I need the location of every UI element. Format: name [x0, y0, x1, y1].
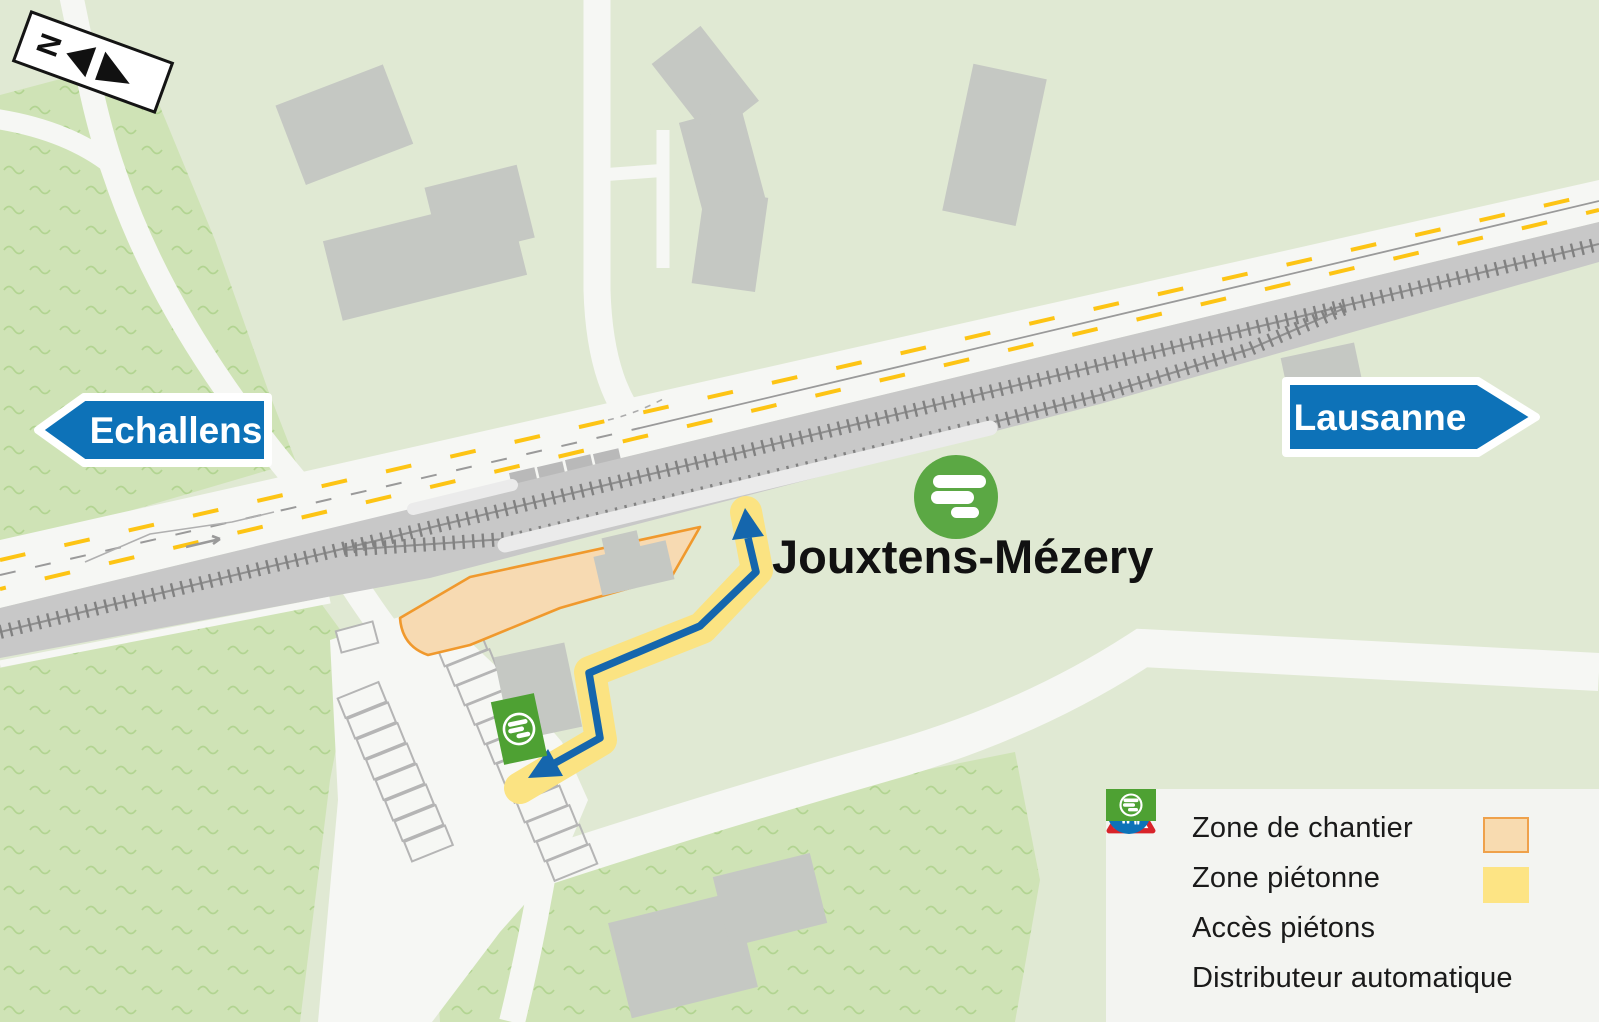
pedestrian-zone-swatch	[1483, 867, 1529, 903]
legend-label: Distributeur automatique	[1192, 962, 1513, 995]
legend-row-access: Accès piétons	[1134, 903, 1599, 953]
sign-lausanne-label: Lausanne	[1294, 397, 1467, 438]
legend-label: Zone piétonne	[1192, 862, 1380, 895]
legend-label: Accès piétons	[1192, 912, 1375, 945]
sign-lausanne: Lausanne	[1286, 381, 1536, 453]
legend-label: Zone de chantier	[1192, 812, 1413, 845]
construction-zone-swatch	[1483, 817, 1529, 853]
sign-echallens-label: Echallens	[90, 410, 263, 451]
legend: Zone de chantier Zone piétonne Accès pié…	[1106, 789, 1599, 1022]
sign-echallens: Echallens	[38, 397, 268, 463]
legend-row-machine: Distributeur automatique	[1134, 953, 1599, 1003]
legend-row-pedestrian-zone: Zone piétonne	[1134, 853, 1599, 903]
station-map: Jouxtens-Mézery Echallens Lausanne N Zon…	[0, 0, 1599, 1022]
station-name-label: Jouxtens-Mézery	[772, 530, 1153, 583]
legend-row-construction: Zone de chantier	[1134, 803, 1599, 853]
building	[692, 189, 769, 292]
